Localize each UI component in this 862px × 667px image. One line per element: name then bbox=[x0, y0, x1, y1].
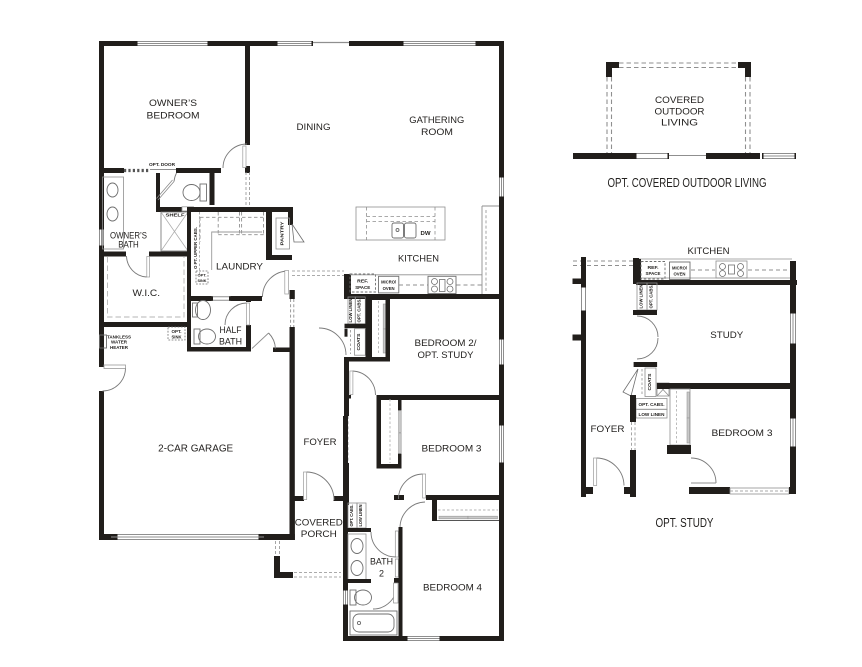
svg-text:WATER: WATER bbox=[111, 340, 128, 345]
svg-text:SPACE: SPACE bbox=[646, 271, 661, 276]
svg-text:OVEN: OVEN bbox=[674, 272, 686, 277]
svg-text:COATS: COATS bbox=[647, 373, 652, 390]
svg-text:2: 2 bbox=[379, 569, 384, 579]
svg-text:HALF: HALF bbox=[220, 325, 242, 335]
svg-text:OPT. COVERED OUTDOOR LIVING: OPT. COVERED OUTDOOR LIVING bbox=[608, 176, 767, 190]
svg-text:LOW LINEN: LOW LINEN bbox=[348, 299, 353, 323]
svg-text:REF.: REF. bbox=[357, 279, 368, 284]
svg-text:COVERED: COVERED bbox=[655, 95, 704, 106]
svg-text:FOYER: FOYER bbox=[304, 437, 337, 448]
svg-text:COATS: COATS bbox=[356, 333, 361, 350]
svg-text:LOW LINEN: LOW LINEN bbox=[639, 412, 665, 417]
svg-text:PANTRY: PANTRY bbox=[280, 220, 286, 245]
svg-text:BEDROOM: BEDROOM bbox=[147, 110, 200, 121]
svg-text:O PT. UPPER CABS.: O PT. UPPER CABS. bbox=[193, 227, 198, 269]
svg-text:STUDY: STUDY bbox=[710, 330, 744, 341]
svg-text:BEDROOM 3: BEDROOM 3 bbox=[422, 443, 482, 454]
svg-text:OVEN: OVEN bbox=[383, 286, 396, 291]
svg-text:FOYER: FOYER bbox=[591, 424, 625, 435]
svg-text:ROOM: ROOM bbox=[421, 127, 453, 138]
svg-text:SINK: SINK bbox=[172, 335, 182, 340]
svg-text:2-CAR GARAGE: 2-CAR GARAGE bbox=[158, 443, 233, 454]
svg-text:MICRO/: MICRO/ bbox=[672, 266, 688, 271]
svg-text:OPT. STUDY: OPT. STUDY bbox=[656, 516, 715, 530]
svg-text:PORCH: PORCH bbox=[301, 529, 337, 540]
svg-text:LOW LINEN: LOW LINEN bbox=[358, 505, 363, 527]
svg-text:SPACE: SPACE bbox=[355, 285, 370, 290]
svg-text:OWNER’S: OWNER’S bbox=[149, 98, 197, 109]
svg-text:BATH: BATH bbox=[118, 240, 139, 250]
svg-text:BEDROOM 4: BEDROOM 4 bbox=[423, 582, 482, 593]
svg-text:DINING: DINING bbox=[297, 122, 331, 133]
svg-text:LIVING: LIVING bbox=[661, 118, 698, 129]
svg-text:LOW LINEN: LOW LINEN bbox=[639, 285, 644, 309]
svg-text:W.I.C.: W.I.C. bbox=[133, 288, 161, 299]
svg-text:REF.: REF. bbox=[648, 265, 659, 270]
svg-text:OPT. CABS.: OPT. CABS. bbox=[349, 505, 354, 527]
svg-text:GATHERING: GATHERING bbox=[409, 115, 464, 126]
svg-text:MICRO/: MICRO/ bbox=[381, 280, 397, 285]
svg-text:BEDROOM 2/: BEDROOM 2/ bbox=[415, 338, 477, 349]
svg-text:KITCHEN: KITCHEN bbox=[688, 246, 730, 257]
svg-text:COVERED: COVERED bbox=[295, 518, 343, 529]
svg-text:SHELF: SHELF bbox=[166, 213, 185, 218]
svg-text:OPT. CABS.: OPT. CABS. bbox=[639, 402, 665, 407]
svg-text:BATH: BATH bbox=[370, 557, 393, 567]
svg-text:OPT.: OPT. bbox=[172, 329, 182, 334]
svg-text:OPT. DOOR: OPT. DOOR bbox=[149, 162, 176, 168]
svg-text:LAUNDRY: LAUNDRY bbox=[216, 261, 264, 272]
svg-text:HEATER: HEATER bbox=[110, 345, 129, 350]
svg-text:OPT. CABS.: OPT. CABS. bbox=[357, 299, 362, 323]
svg-text:OUTDOOR: OUTDOOR bbox=[655, 106, 705, 117]
svg-text:DW: DW bbox=[421, 231, 431, 237]
svg-text:SINK: SINK bbox=[198, 278, 207, 283]
svg-text:OPT.: OPT. bbox=[198, 273, 207, 278]
svg-text:TANKLESS: TANKLESS bbox=[107, 334, 131, 339]
svg-text:OPT. STUDY: OPT. STUDY bbox=[418, 350, 475, 361]
svg-text:OPT. CABS.: OPT. CABS. bbox=[649, 285, 654, 309]
svg-text:BATH: BATH bbox=[219, 337, 242, 347]
svg-text:BEDROOM 3: BEDROOM 3 bbox=[712, 428, 773, 439]
svg-text:KITCHEN: KITCHEN bbox=[398, 254, 439, 265]
